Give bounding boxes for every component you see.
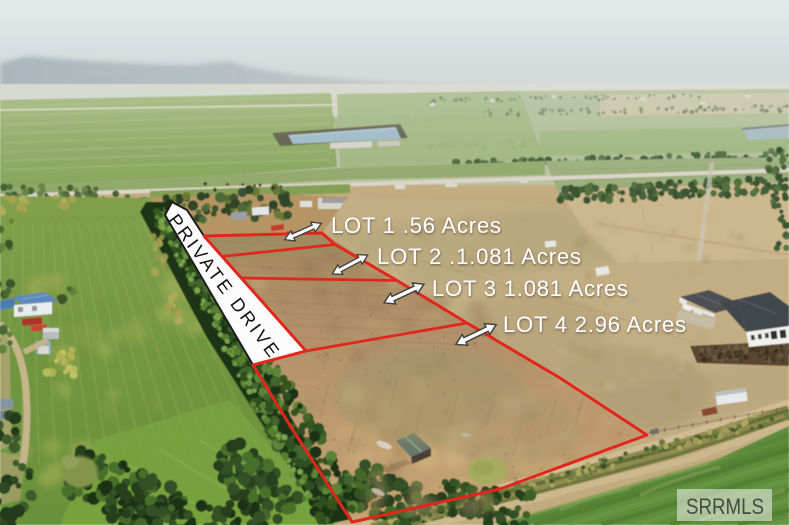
svg-text:LOT 1 .56 Acres: LOT 1 .56 Acres xyxy=(331,213,501,238)
svg-text:SRRMLS: SRRMLS xyxy=(686,494,764,519)
svg-text:LOT 4 2.96 Acres: LOT 4 2.96 Acres xyxy=(503,312,686,337)
svg-text:LOT 3 1.081 Acres: LOT 3 1.081 Acres xyxy=(432,276,628,301)
svg-text:LOT 2 .1.081 Acres: LOT 2 .1.081 Acres xyxy=(377,244,581,269)
